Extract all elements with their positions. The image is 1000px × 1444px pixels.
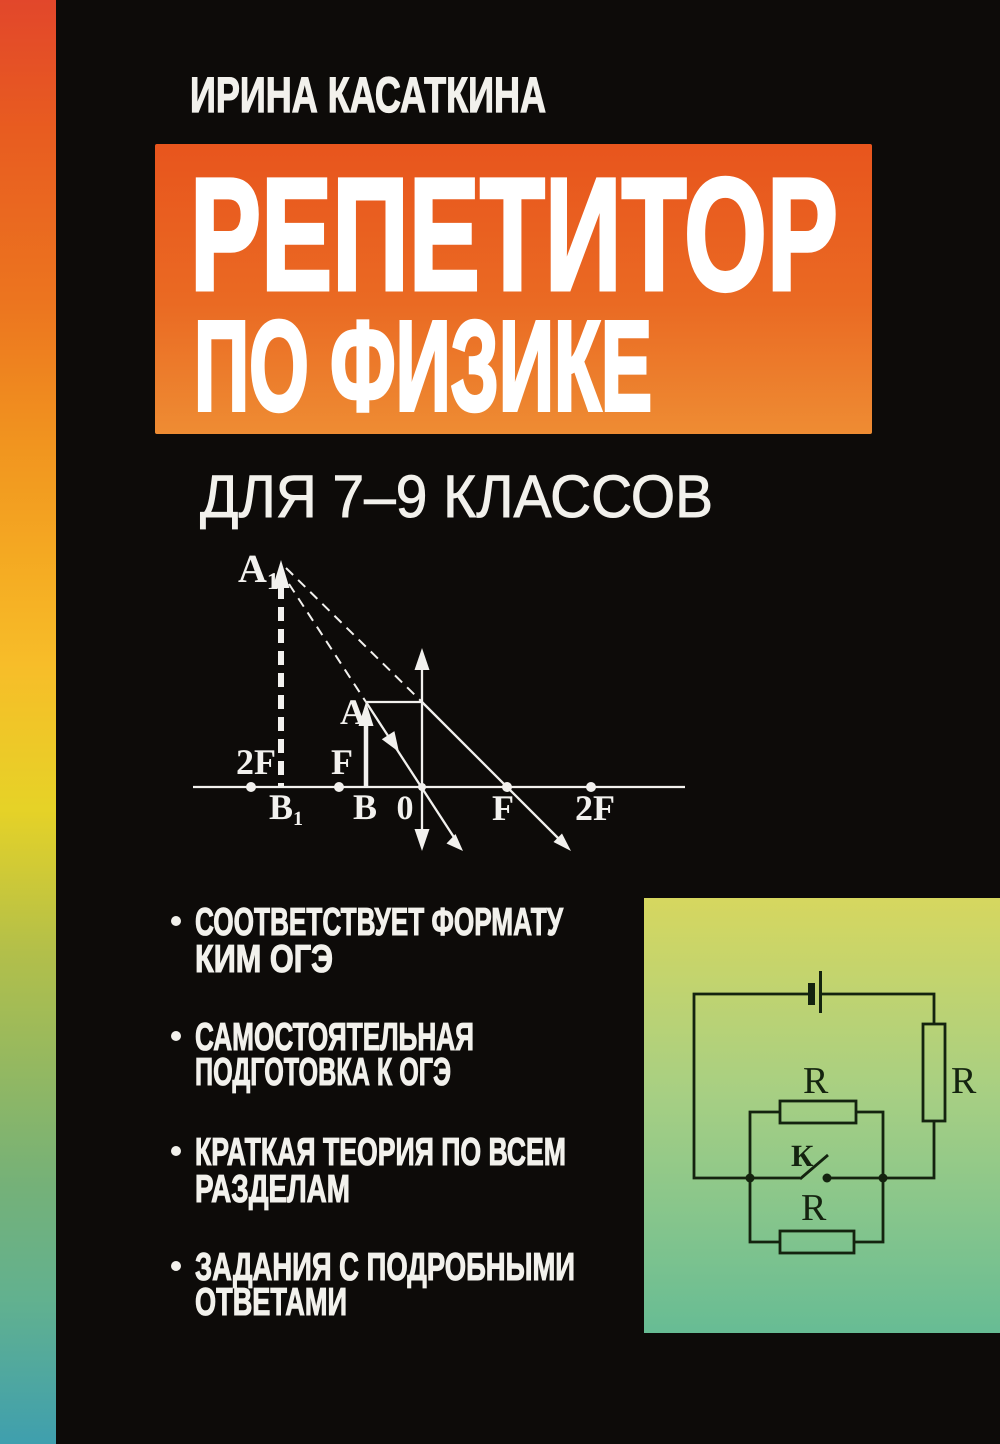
svg-text:РАЗДЕЛАМ: РАЗДЕЛАМ — [195, 1168, 350, 1211]
svg-text:A: A — [340, 692, 366, 732]
svg-text:R: R — [803, 1060, 829, 1102]
svg-text:0: 0 — [397, 790, 414, 827]
svg-text:B: B — [353, 787, 377, 827]
svg-text:КИМ ОГЭ: КИМ ОГЭ — [195, 938, 333, 981]
svg-text:ОТВЕТАМИ: ОТВЕТАМИ — [195, 1281, 347, 1324]
svg-text:F: F — [331, 742, 353, 782]
svg-text:ПОДГОТОВКА К ОГЭ: ПОДГОТОВКА К ОГЭ — [195, 1051, 451, 1094]
svg-text:ДЛЯ 7–9 КЛАССОВ: ДЛЯ 7–9 КЛАССОВ — [200, 463, 713, 530]
svg-text:2F: 2F — [236, 742, 276, 782]
svg-text:2F: 2F — [575, 788, 615, 828]
svg-text:ИРИНА КАСАТКИНА: ИРИНА КАСАТКИНА — [190, 67, 546, 123]
svg-text:F: F — [492, 788, 514, 828]
svg-text:R: R — [801, 1187, 827, 1229]
svg-text:R: R — [951, 1060, 977, 1102]
svg-text:К: К — [791, 1138, 814, 1173]
svg-text:ПО ФИЗИКЕ: ПО ФИЗИКЕ — [194, 295, 652, 438]
